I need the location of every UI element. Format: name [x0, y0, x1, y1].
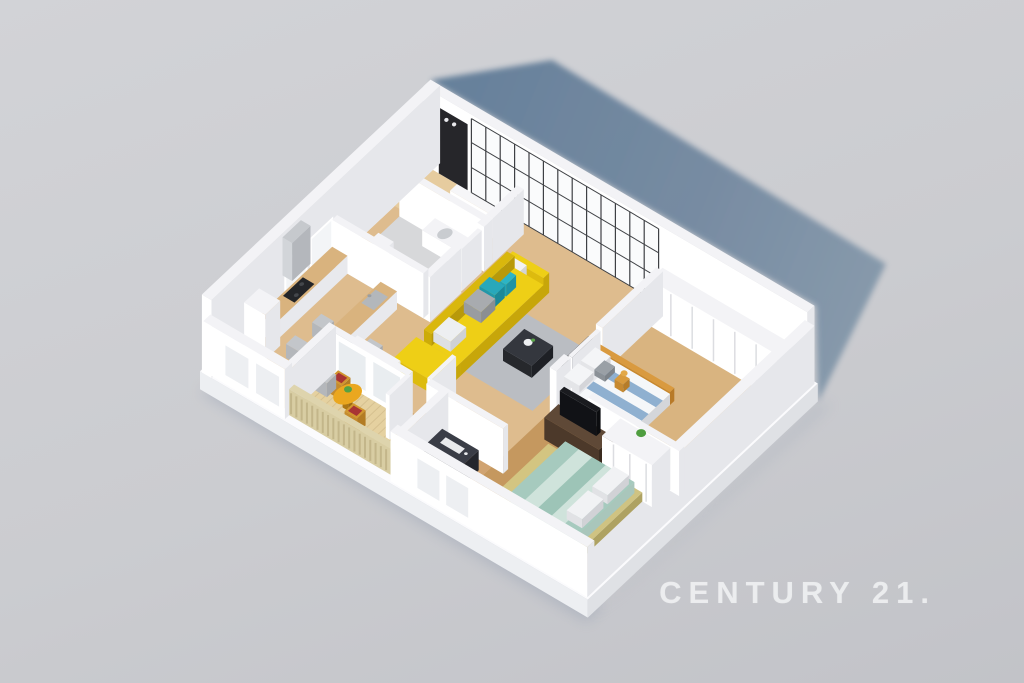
century21-watermark: CENTURY 21.	[659, 575, 936, 611]
watermark-text: CENTURY 21.	[659, 575, 936, 610]
